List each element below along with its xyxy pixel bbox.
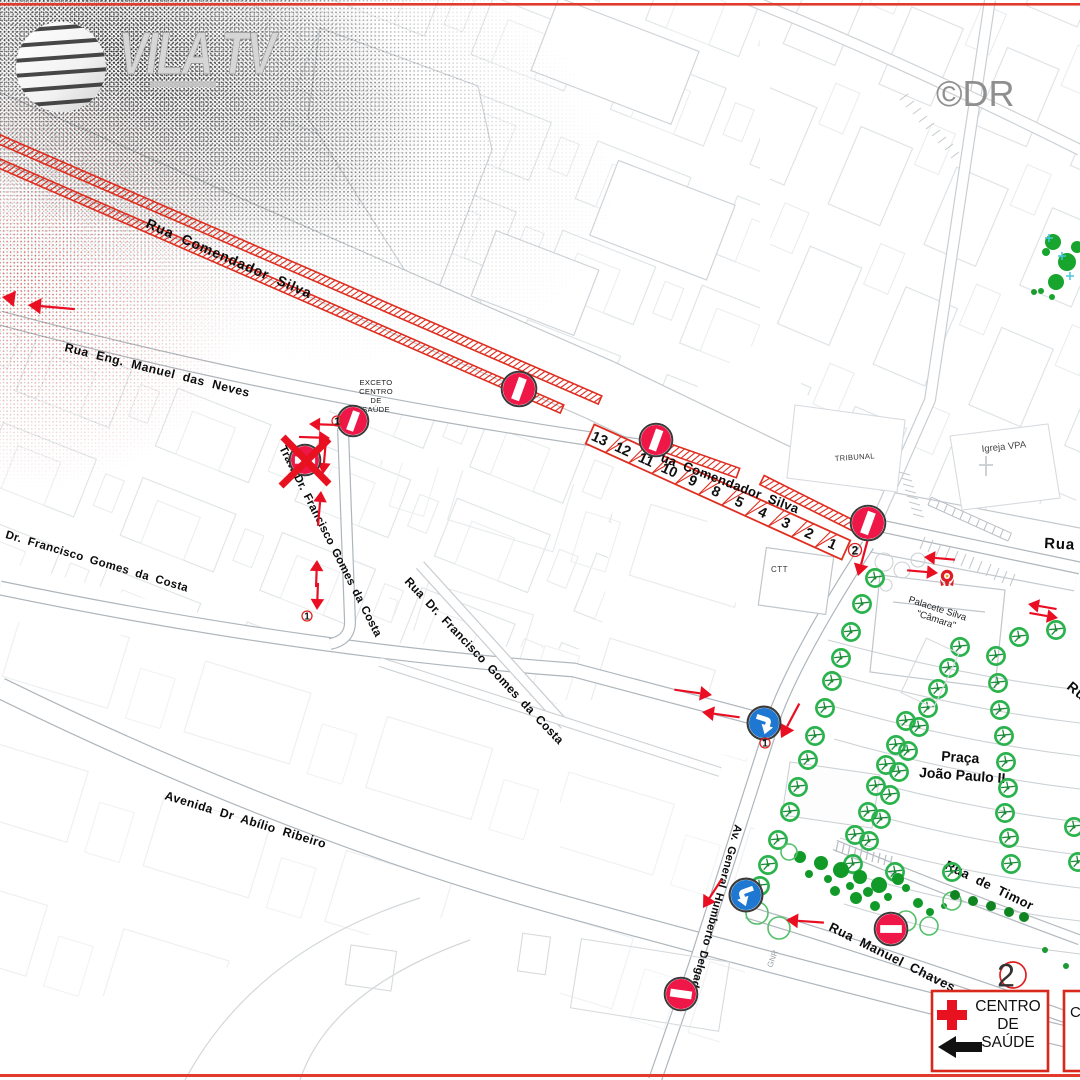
svg-text:2: 2	[852, 543, 859, 557]
svg-text:©DR: ©DR	[936, 73, 1015, 114]
svg-text:C: C	[1070, 1004, 1080, 1021]
svg-text:CENTRO: CENTRO	[359, 387, 393, 396]
svg-text:SAÚDE: SAÚDE	[981, 1034, 1034, 1051]
svg-text:EXCETO: EXCETO	[360, 378, 393, 387]
svg-text:CTT: CTT	[771, 565, 788, 574]
svg-text:2: 2	[997, 958, 1015, 994]
svg-text:DE: DE	[370, 396, 381, 405]
svg-text:Rua D: Rua D	[1044, 535, 1080, 555]
svg-text:Praça: Praça	[941, 748, 980, 767]
svg-text:VILA TV: VILA TV	[114, 21, 281, 88]
svg-text:1: 1	[334, 417, 340, 428]
svg-text:1: 1	[304, 612, 310, 623]
svg-text:DE: DE	[997, 1016, 1019, 1033]
svg-text:CENTRO: CENTRO	[975, 998, 1040, 1015]
svg-text:1: 1	[762, 739, 768, 750]
